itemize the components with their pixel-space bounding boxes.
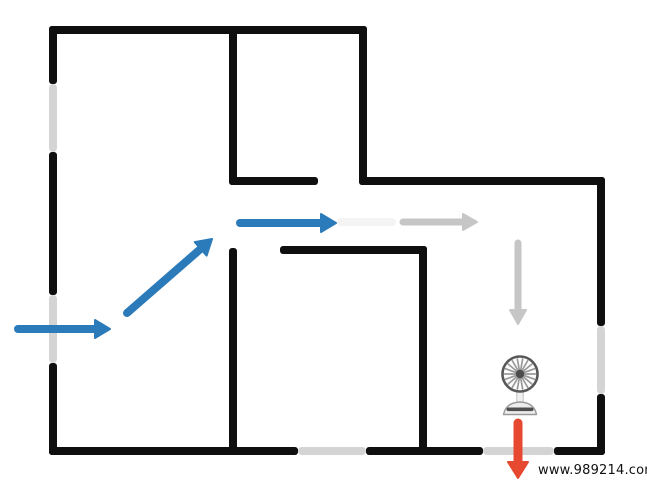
outer-wall-left-middle <box>49 152 57 295</box>
floor-plan-diagram: www.989214.com <box>0 0 647 482</box>
outer-wall-bottom-left <box>49 447 298 455</box>
outer-wall-right-upper <box>597 177 605 326</box>
airflow-arrow-down-gray <box>510 243 526 324</box>
window-right <box>597 326 605 394</box>
outer-wall-bottom-right <box>554 447 605 455</box>
airflow-arrow-diagonal <box>127 239 212 313</box>
outer-wall-left-upper <box>49 26 57 84</box>
outer-wall-left-lower <box>49 363 57 455</box>
floor-plan-canvas <box>0 0 647 482</box>
outer-wall-step-horizontal <box>359 177 605 185</box>
fan-hub <box>516 370 524 378</box>
window-bottom-center <box>298 447 366 455</box>
center-room-wall-right <box>419 246 427 455</box>
watermark: www.989214.com <box>538 463 647 478</box>
fan-icon <box>503 357 538 415</box>
airflow-arrow-hall-gray <box>403 214 477 230</box>
top-room-wall-horizontal <box>229 177 318 185</box>
top-room-wall-vertical <box>229 26 237 185</box>
center-room-wall-left <box>229 248 237 455</box>
airflow-arrow-inlet <box>18 320 110 338</box>
center-room-wall-top <box>280 246 427 254</box>
window-left-upper <box>49 84 57 152</box>
fan-base-stripe <box>507 408 534 412</box>
outer-wall-step-vertical <box>359 26 367 185</box>
airflow-arrow-corridor <box>240 214 336 232</box>
outer-wall-right-lower <box>597 394 605 455</box>
outer-wall-top <box>49 26 367 34</box>
